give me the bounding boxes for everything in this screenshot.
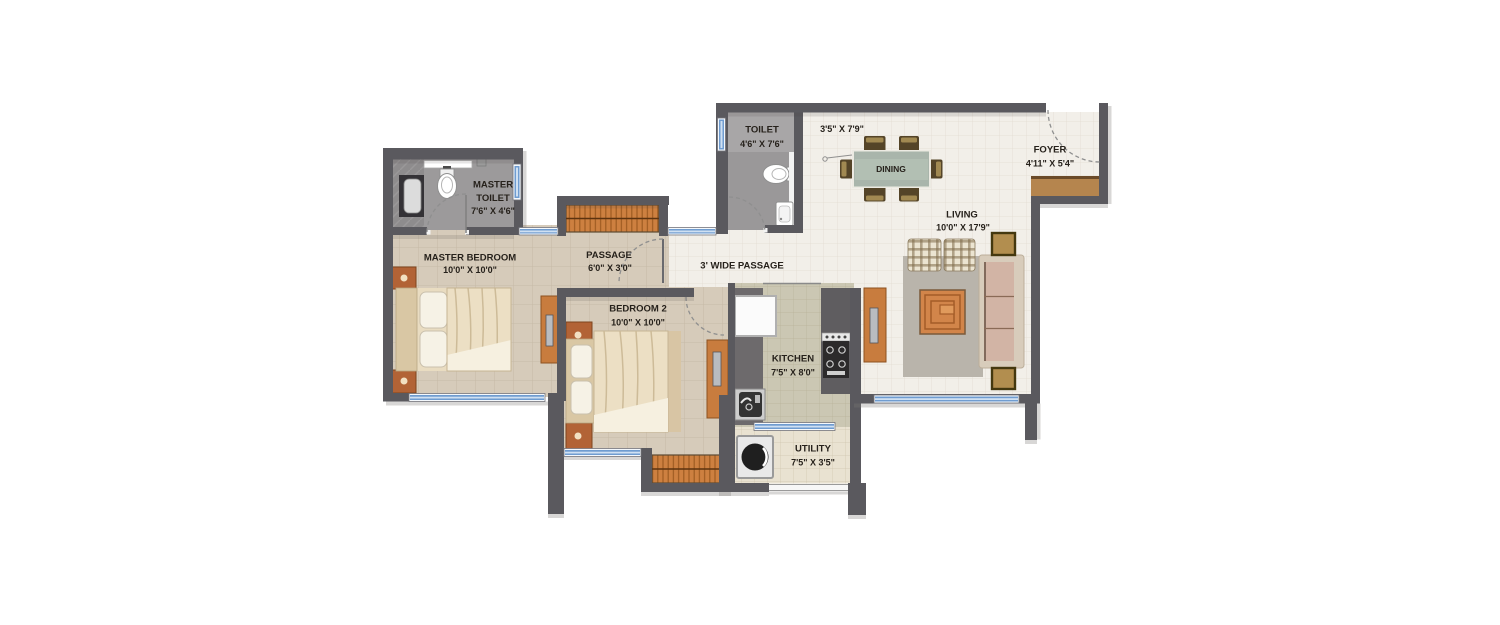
svg-text:3'5" X 7'9": 3'5" X 7'9" bbox=[820, 124, 864, 134]
svg-text:TOILET: TOILET bbox=[476, 193, 510, 204]
svg-text:KITCHEN: KITCHEN bbox=[772, 353, 814, 364]
svg-text:UTILITY: UTILITY bbox=[795, 443, 832, 454]
svg-text:MASTER: MASTER bbox=[473, 179, 513, 190]
svg-text:10'0" X 10'0": 10'0" X 10'0" bbox=[611, 317, 665, 327]
svg-text:MASTER BEDROOM: MASTER BEDROOM bbox=[424, 252, 516, 263]
svg-text:BEDROOM 2: BEDROOM 2 bbox=[609, 303, 667, 314]
svg-text:4'6" X 7'6": 4'6" X 7'6" bbox=[740, 139, 784, 149]
svg-text:FOYER: FOYER bbox=[1034, 144, 1067, 155]
svg-text:TOILET: TOILET bbox=[745, 124, 779, 135]
svg-text:10'0" X 17'9": 10'0" X 17'9" bbox=[936, 222, 990, 232]
svg-text:PASSAGE: PASSAGE bbox=[586, 250, 632, 261]
svg-text:7'5" X 8'0": 7'5" X 8'0" bbox=[771, 367, 815, 377]
svg-text:10'0" X 10'0": 10'0" X 10'0" bbox=[443, 265, 497, 275]
svg-text:7'6" X 4'6": 7'6" X 4'6" bbox=[471, 206, 515, 216]
svg-text:7'5" X 3'5": 7'5" X 3'5" bbox=[791, 457, 835, 467]
svg-text:6'0" X 3'0": 6'0" X 3'0" bbox=[588, 263, 632, 273]
svg-text:DINING: DINING bbox=[876, 164, 906, 174]
svg-text:4'11" X 5'4": 4'11" X 5'4" bbox=[1026, 158, 1074, 168]
svg-text:LIVING: LIVING bbox=[946, 209, 978, 220]
svg-text:3' WIDE PASSAGE: 3' WIDE PASSAGE bbox=[700, 260, 783, 271]
